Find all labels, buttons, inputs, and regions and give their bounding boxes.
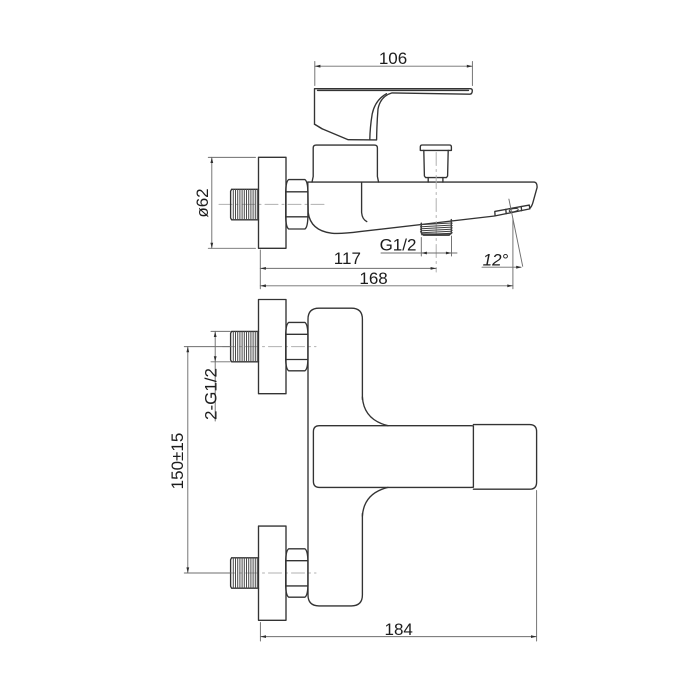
- svg-text:106: 106: [379, 49, 407, 68]
- svg-text:150±15: 150±15: [168, 433, 187, 490]
- svg-text:2-G1/2: 2-G1/2: [202, 368, 221, 420]
- svg-text:184: 184: [385, 620, 413, 639]
- svg-text:G1/2: G1/2: [380, 236, 417, 255]
- svg-text:12°: 12°: [483, 251, 509, 270]
- svg-text:ø62: ø62: [193, 188, 212, 217]
- svg-text:168: 168: [359, 269, 387, 288]
- svg-text:117: 117: [334, 249, 361, 268]
